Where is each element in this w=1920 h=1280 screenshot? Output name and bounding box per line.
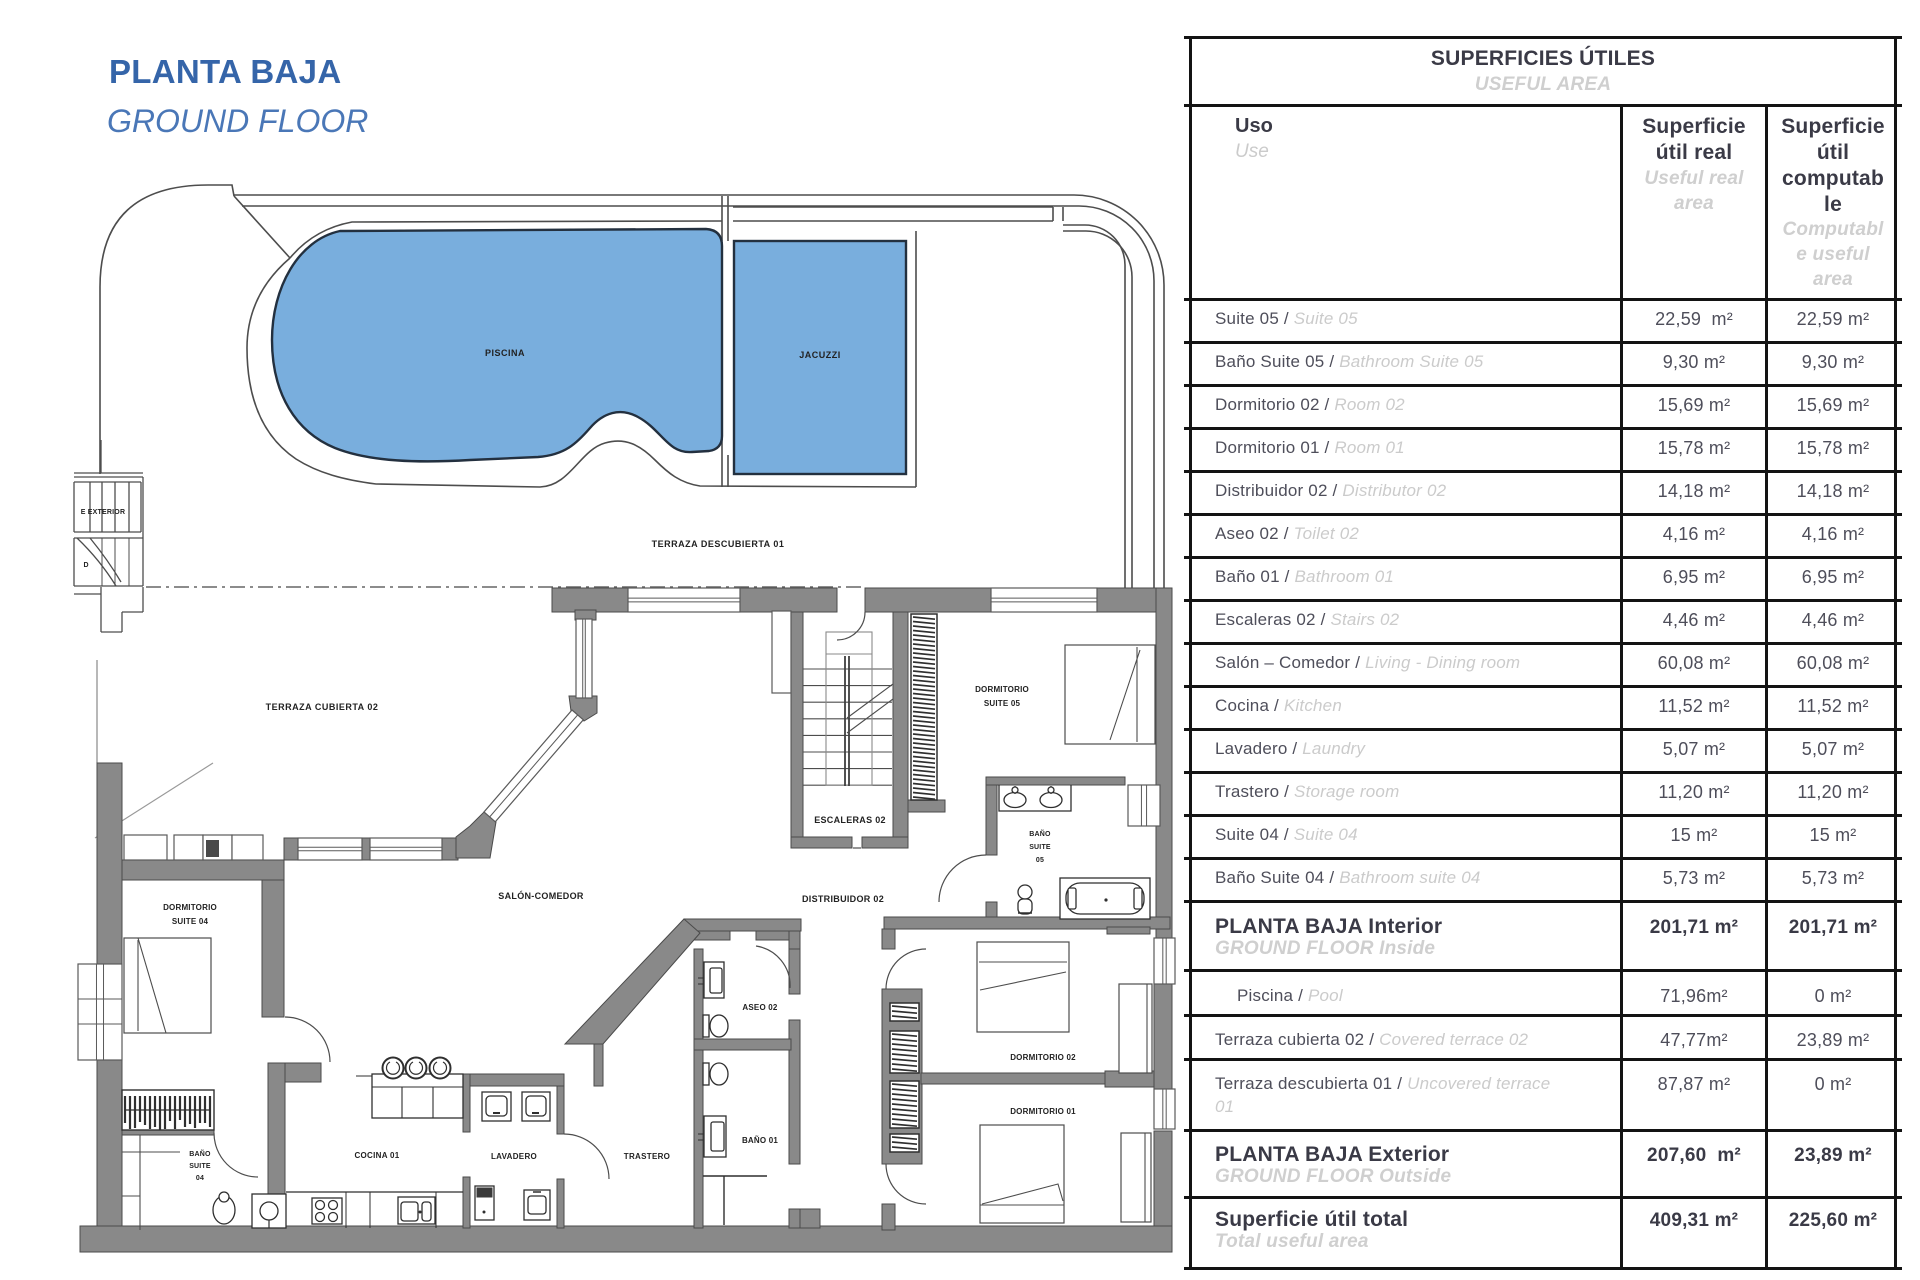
svg-text:SUITE: SUITE [1029, 844, 1051, 851]
svg-text:JACUZZI: JACUZZI [799, 350, 841, 360]
svg-text:D: D [83, 562, 88, 569]
svg-text:SUITE 04: SUITE 04 [172, 917, 209, 926]
svg-text:DORMITORIO 01: DORMITORIO 01 [1010, 1107, 1076, 1116]
svg-text:05: 05 [1036, 857, 1044, 864]
svg-text:04: 04 [196, 1175, 204, 1182]
svg-text:ESCALERAS 02: ESCALERAS 02 [814, 815, 886, 825]
svg-text:DORMITORIO: DORMITORIO [163, 903, 217, 912]
svg-text:DORMITORIO 02: DORMITORIO 02 [1010, 1053, 1076, 1062]
svg-text:BAÑO: BAÑO [1029, 829, 1051, 838]
svg-text:SALÓN-COMEDOR: SALÓN-COMEDOR [498, 890, 584, 901]
svg-text:ASEO 02: ASEO 02 [742, 1003, 778, 1012]
svg-text:PISCINA: PISCINA [485, 348, 525, 358]
svg-text:BAÑO 01: BAÑO 01 [742, 1136, 778, 1145]
svg-text:DISTRIBUIDOR 02: DISTRIBUIDOR 02 [802, 894, 884, 904]
svg-text:BAÑO: BAÑO [189, 1149, 211, 1158]
svg-text:E EXTERIOR: E EXTERIOR [81, 509, 125, 516]
svg-text:DORMITORIO: DORMITORIO [975, 685, 1029, 694]
svg-text:SUITE 05: SUITE 05 [984, 699, 1021, 708]
svg-text:COCINA 01: COCINA 01 [354, 1151, 399, 1160]
svg-text:TRASTERO: TRASTERO [624, 1152, 670, 1161]
svg-text:SUITE: SUITE [189, 1163, 211, 1170]
svg-text:LAVADERO: LAVADERO [491, 1152, 537, 1161]
svg-text:TERRAZA DESCUBIERTA 01: TERRAZA DESCUBIERTA 01 [652, 539, 785, 549]
svg-text:TERRAZA CUBIERTA 02: TERRAZA CUBIERTA 02 [266, 702, 379, 712]
